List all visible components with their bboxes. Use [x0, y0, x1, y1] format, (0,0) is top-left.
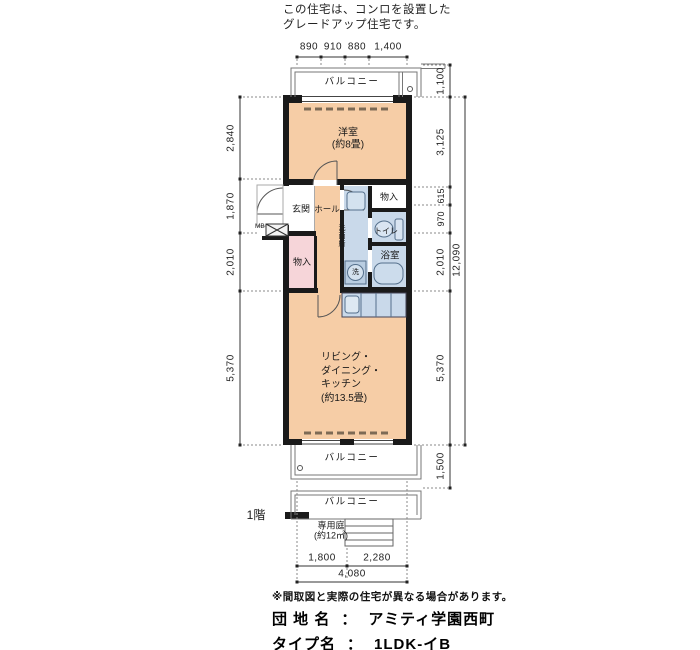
ldk-line1: リビング・ [321, 351, 381, 365]
type-name-label: タイプ名 [272, 633, 336, 650]
hall-label: ホール [314, 205, 340, 215]
header-note-line2: グレードアップ住宅です。 [283, 18, 451, 33]
type-name-value: 1LDK-イB [374, 633, 451, 650]
dim-right-1100: 1,100 [435, 67, 447, 95]
dim-right-3125: 3,125 [435, 128, 447, 156]
ldk-size: (約13.5畳) [321, 392, 381, 406]
header-note-line1: この住宅は、コンロを設置した [283, 3, 451, 18]
dim-left-2010: 2,010 [225, 248, 237, 276]
dim-right-970: 970 [436, 211, 446, 226]
garden-label: 専用庭 (約12㎡) [314, 521, 348, 542]
dim-top-1400: 1,400 [374, 41, 402, 53]
ldk-label: リビング・ ダイニング・ キッチン (約13.5畳) [321, 351, 381, 405]
meter-box-label: MB [255, 223, 265, 230]
ldk-line3: キッチン [321, 378, 381, 392]
estate-name-colon: ： [341, 608, 357, 629]
bathtub-fixture [374, 263, 403, 284]
dim-left-1870: 1,870 [225, 192, 237, 220]
garden-name: 専用庭 [314, 521, 348, 531]
dim-bottom-total-4080: 4,080 [338, 568, 366, 580]
estate-name-value: アミティ学園西町 [368, 608, 495, 629]
ldk-line2: ダイニング・ [321, 365, 381, 379]
disclaimer: ※間取図と実際の住宅が異なる場合があります。 [272, 589, 513, 604]
dim-top-890: 890 [300, 41, 318, 53]
dim-bottom-1800: 1,800 [308, 552, 336, 564]
dim-top-910: 910 [324, 41, 342, 53]
footer: ※間取図と実際の住宅が異なる場合があります。 団 地 名 ： アミティ学園西町 … [272, 589, 513, 650]
floor-label: 1階 [247, 509, 266, 523]
dim-left-2840: 2,840 [225, 124, 237, 152]
washer-symbol-label: 洗 [352, 268, 359, 276]
floor-plan-page: この住宅は、コンロを設置した グレードアップ住宅です。 890 910 880 … [0, 0, 700, 650]
floor-plan-drawing [0, 0, 700, 650]
estate-name-row: 団 地 名 ： アミティ学園西町 [272, 608, 513, 629]
dim-right-total-12090: 12,090 [451, 243, 463, 277]
dim-right-2010: 2,010 [435, 248, 447, 276]
washroom-label: 洗面所 [337, 224, 345, 248]
estate-name-label: 団 地 名 [272, 608, 330, 629]
dim-bottom-2280: 2,280 [363, 552, 391, 564]
bath-label: 浴室 [380, 252, 399, 263]
dim-left-5370: 5,370 [225, 354, 237, 382]
western-room-size: (約8畳) [332, 139, 364, 151]
meter-box [266, 224, 288, 236]
garden-size: (約12㎡) [314, 531, 348, 541]
garden-steps [345, 519, 393, 546]
closet-upper-label: 物入 [380, 192, 398, 202]
header-note: この住宅は、コンロを設置した グレードアップ住宅です。 [283, 3, 451, 33]
entrance-label: 玄関 [292, 204, 310, 214]
balcony-top-label: バルコニー [325, 78, 380, 89]
type-name-colon: ： [347, 633, 363, 650]
western-room-label: 洋室 (約8畳) [332, 128, 364, 151]
dim-right-5370: 5,370 [435, 354, 447, 382]
dim-right-615: 615 [436, 188, 446, 203]
dim-top-880: 880 [348, 41, 366, 53]
balcony-bottom-label: バルコニー [325, 454, 380, 465]
type-name-row: タイプ名 ： 1LDK-イB [272, 633, 513, 650]
western-room-name: 洋室 [332, 128, 364, 140]
closet-hall-label: 物入 [293, 257, 311, 267]
balcony-1f-label: バルコニー [325, 498, 380, 509]
toilet-label: トイレ [374, 226, 398, 235]
washbasin-fixture [347, 192, 365, 210]
dim-right-1500: 1,500 [435, 452, 447, 480]
kitchen-sink-fixture [345, 296, 359, 313]
